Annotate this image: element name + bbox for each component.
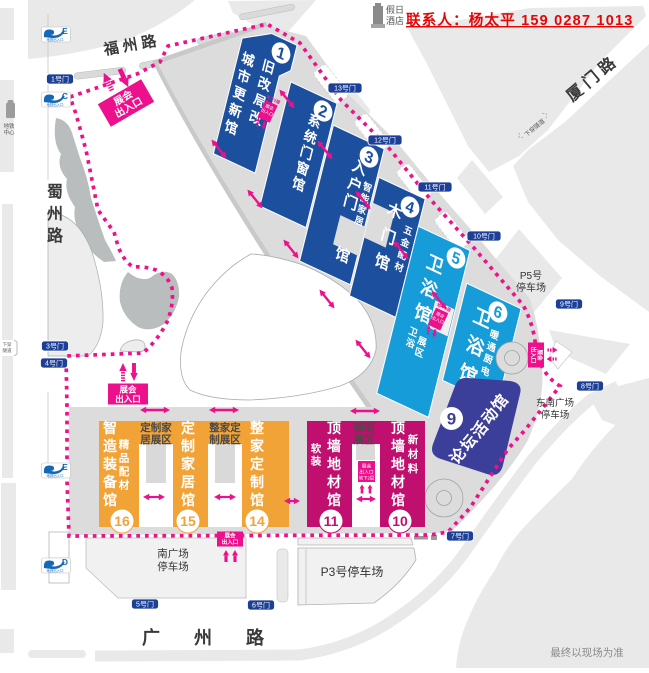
svg-text:1号门: 1号门 — [51, 74, 69, 83]
svg-text:整家定: 整家定 — [208, 421, 241, 434]
svg-text:材: 材 — [118, 479, 130, 492]
svg-text:16: 16 — [114, 513, 130, 529]
svg-text:材: 材 — [391, 474, 405, 490]
svg-text:展会: 展会 — [536, 349, 544, 361]
svg-text:地下2层: 地下2层 — [359, 475, 375, 482]
svg-text:顶: 顶 — [391, 420, 405, 436]
svg-text:制: 制 — [181, 438, 195, 454]
svg-text:酒店: 酒店 — [386, 15, 404, 26]
svg-text:装: 装 — [102, 456, 118, 472]
svg-text:15: 15 — [180, 513, 196, 529]
svg-text:C: C — [62, 91, 68, 101]
svg-text:东南广场: 东南广场 — [536, 397, 574, 409]
svg-text:7号门: 7号门 — [451, 531, 469, 540]
svg-text:地铁出入口: 地铁出入口 — [47, 102, 64, 107]
svg-text:出入口: 出入口 — [115, 394, 141, 404]
svg-text:地铁出入口: 地铁出入口 — [47, 37, 64, 42]
svg-text:5号门: 5号门 — [136, 599, 154, 608]
svg-text:展会: 展会 — [224, 532, 236, 540]
svg-text:蜀: 蜀 — [47, 183, 63, 201]
svg-text:墙: 墙 — [391, 438, 405, 454]
svg-text:智: 智 — [102, 420, 117, 436]
svg-text:馆: 馆 — [391, 492, 405, 508]
svg-text:地铁: 地铁 — [3, 122, 15, 130]
svg-text:停车场: 停车场 — [541, 409, 570, 421]
svg-text:假日: 假日 — [386, 5, 404, 15]
svg-text:E: E — [62, 26, 68, 36]
svg-text:9号门: 9号门 — [560, 299, 578, 308]
svg-text:软: 软 — [311, 442, 322, 455]
svg-text:品: 品 — [119, 453, 130, 465]
svg-text:12号门: 12号门 — [374, 135, 396, 144]
svg-text:居展区: 居展区 — [140, 434, 172, 446]
svg-text:地: 地 — [391, 456, 405, 472]
svg-text:家: 家 — [250, 438, 265, 454]
svg-text:10号门: 10号门 — [473, 231, 495, 240]
svg-text:出入口: 出入口 — [222, 538, 239, 546]
svg-text:顶: 顶 — [327, 420, 341, 436]
svg-text:11: 11 — [324, 513, 339, 529]
svg-text:出入口: 出入口 — [529, 347, 537, 364]
svg-text:装: 装 — [310, 455, 322, 468]
svg-text:地铁出入口: 地铁出入口 — [47, 568, 64, 573]
svg-text:9: 9 — [447, 410, 456, 429]
svg-text:11号门: 11号门 — [424, 182, 445, 191]
svg-text:8号门: 8号门 — [581, 381, 599, 390]
svg-text:造: 造 — [103, 438, 117, 454]
svg-text:广州路: 广州路 — [142, 627, 298, 648]
svg-text:展会: 展会 — [118, 385, 137, 395]
svg-text:中心: 中心 — [3, 129, 15, 137]
svg-text:精: 精 — [119, 438, 130, 451]
svg-text:4号门: 4号门 — [45, 358, 63, 367]
svg-text:材: 材 — [327, 474, 341, 490]
svg-text:墙: 墙 — [327, 438, 341, 454]
svg-text:下穿: 下穿 — [3, 341, 12, 348]
svg-text:定: 定 — [181, 420, 195, 436]
svg-text:备: 备 — [102, 474, 118, 490]
svg-text:南广场: 南广场 — [157, 547, 189, 560]
svg-text:停车场: 停车场 — [157, 560, 189, 573]
svg-text:E: E — [62, 462, 68, 472]
svg-text:馆: 馆 — [250, 492, 264, 508]
svg-text:停车场: 停车场 — [516, 281, 546, 294]
svg-text:地: 地 — [327, 456, 341, 472]
svg-text:家: 家 — [181, 456, 196, 472]
svg-text:3号门: 3号门 — [46, 341, 64, 350]
svg-text:10: 10 — [392, 513, 408, 529]
svg-text:隧道: 隧道 — [3, 347, 12, 354]
svg-text:材: 材 — [407, 448, 419, 461]
svg-text:定制家: 定制家 — [139, 421, 172, 434]
svg-text:地铁出入口: 地铁出入口 — [47, 473, 64, 478]
svg-text:定: 定 — [250, 456, 264, 472]
svg-text:6号门: 6号门 — [252, 600, 270, 609]
svg-text:路: 路 — [47, 226, 64, 245]
svg-text:D: D — [62, 557, 68, 567]
svg-text:最终以现场为准: 最终以现场为准 — [550, 646, 624, 659]
svg-text:馆: 馆 — [103, 492, 117, 508]
svg-text:展区: 展区 — [354, 434, 375, 446]
svg-text:新: 新 — [408, 433, 419, 446]
svg-text:P3号停车场: P3号停车场 — [321, 564, 384, 579]
svg-text:馆: 馆 — [327, 492, 341, 508]
svg-text:展会: 展会 — [362, 463, 372, 470]
svg-text:13号门: 13号门 — [334, 83, 356, 92]
svg-text:联系人：杨太平 159 0287 1013: 联系人：杨太平 159 0287 1013 — [406, 11, 634, 29]
svg-text:制展区: 制展区 — [209, 433, 241, 446]
svg-text:14: 14 — [249, 513, 265, 529]
svg-text:照明: 照明 — [354, 422, 375, 434]
svg-text:州: 州 — [46, 205, 63, 223]
svg-text:料: 料 — [408, 462, 419, 475]
svg-text:制: 制 — [250, 474, 264, 490]
svg-text:配: 配 — [119, 466, 130, 478]
svg-text:出入口: 出入口 — [359, 469, 374, 476]
svg-text:整: 整 — [249, 420, 265, 436]
svg-text:馆: 馆 — [181, 492, 195, 508]
svg-text:居: 居 — [181, 474, 195, 490]
svg-text:P5号: P5号 — [520, 270, 542, 282]
